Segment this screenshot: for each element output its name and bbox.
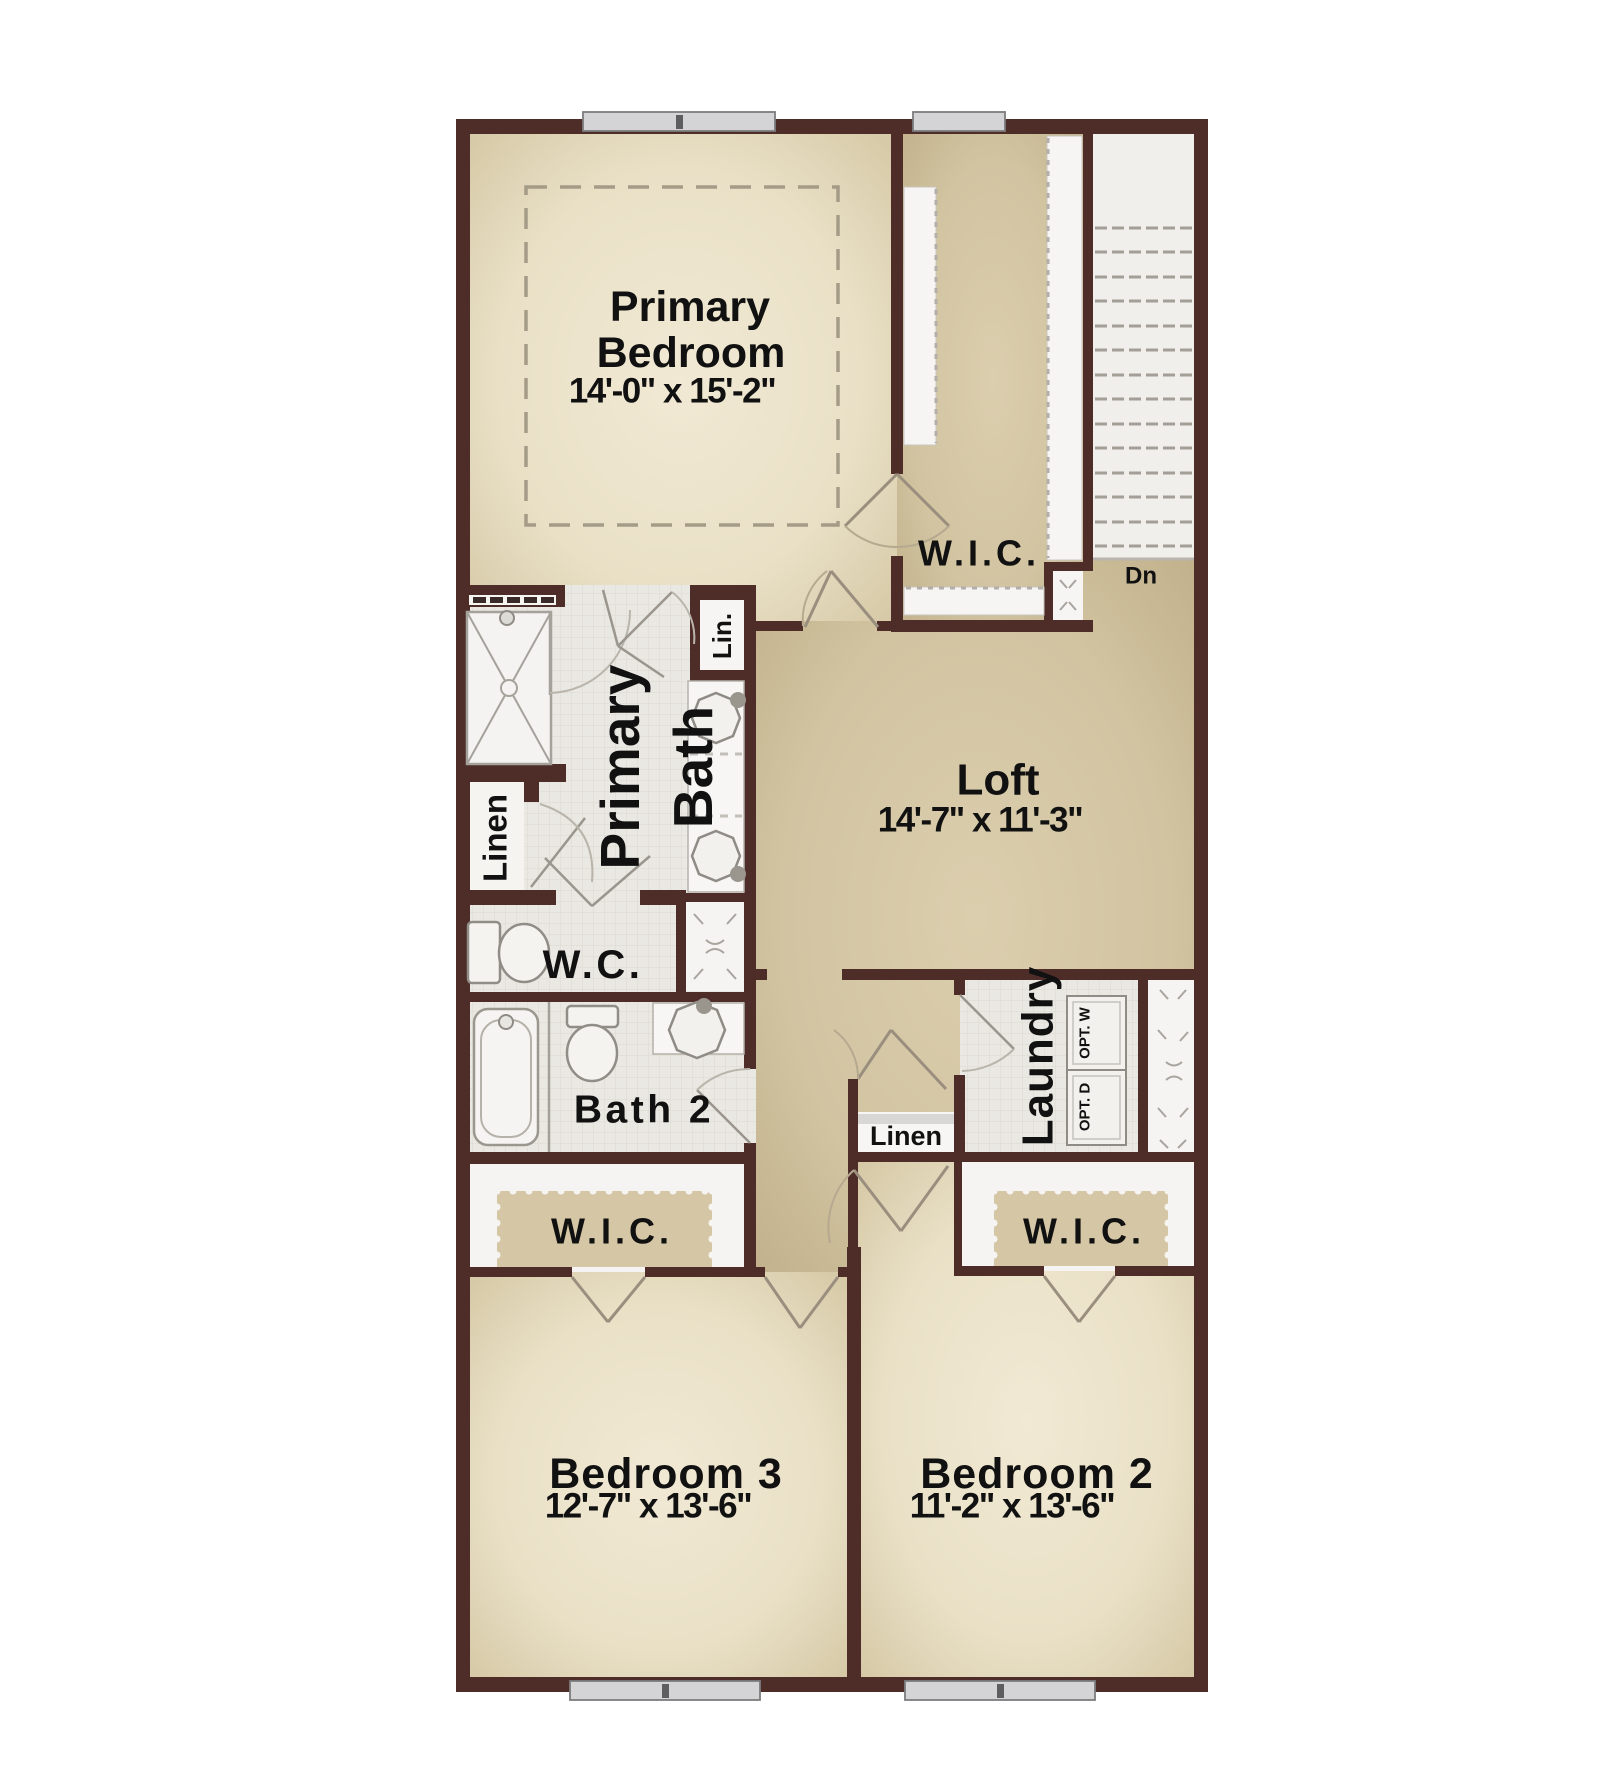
svg-text:14'-0" x 15'-2": 14'-0" x 15'-2" xyxy=(569,372,775,411)
svg-text:Dn: Dn xyxy=(1125,563,1157,590)
svg-text:Primary: Primary xyxy=(610,283,770,331)
svg-text:OPT. D: OPT. D xyxy=(1077,1083,1094,1132)
svg-text:Lin.: Lin. xyxy=(707,613,737,659)
svg-text:Linen: Linen xyxy=(477,794,514,882)
svg-text:12'-7" x 13'-6": 12'-7" x 13'-6" xyxy=(545,1487,751,1526)
svg-text:W.I.C.: W.I.C. xyxy=(551,1211,673,1252)
svg-text:Primary: Primary xyxy=(589,664,651,869)
svg-text:W.I.C.: W.I.C. xyxy=(1023,1211,1145,1252)
svg-text:Bedroom: Bedroom xyxy=(597,329,786,377)
svg-text:OPT. W: OPT. W xyxy=(1077,1006,1094,1059)
svg-text:Laundry: Laundry xyxy=(1014,966,1063,1147)
svg-text:W.I.C.: W.I.C. xyxy=(918,533,1040,574)
svg-text:14'-7" x 11'-3": 14'-7" x 11'-3" xyxy=(878,801,1082,840)
svg-text:Linen: Linen xyxy=(870,1121,942,1151)
svg-text:W.C.: W.C. xyxy=(543,943,644,987)
svg-text:11'-2" x 13'-6": 11'-2" x 13'-6" xyxy=(910,1487,1114,1526)
svg-text:Bath 2: Bath 2 xyxy=(574,1089,714,1132)
svg-text:Bath: Bath xyxy=(662,706,724,828)
svg-text:Loft: Loft xyxy=(956,756,1039,805)
